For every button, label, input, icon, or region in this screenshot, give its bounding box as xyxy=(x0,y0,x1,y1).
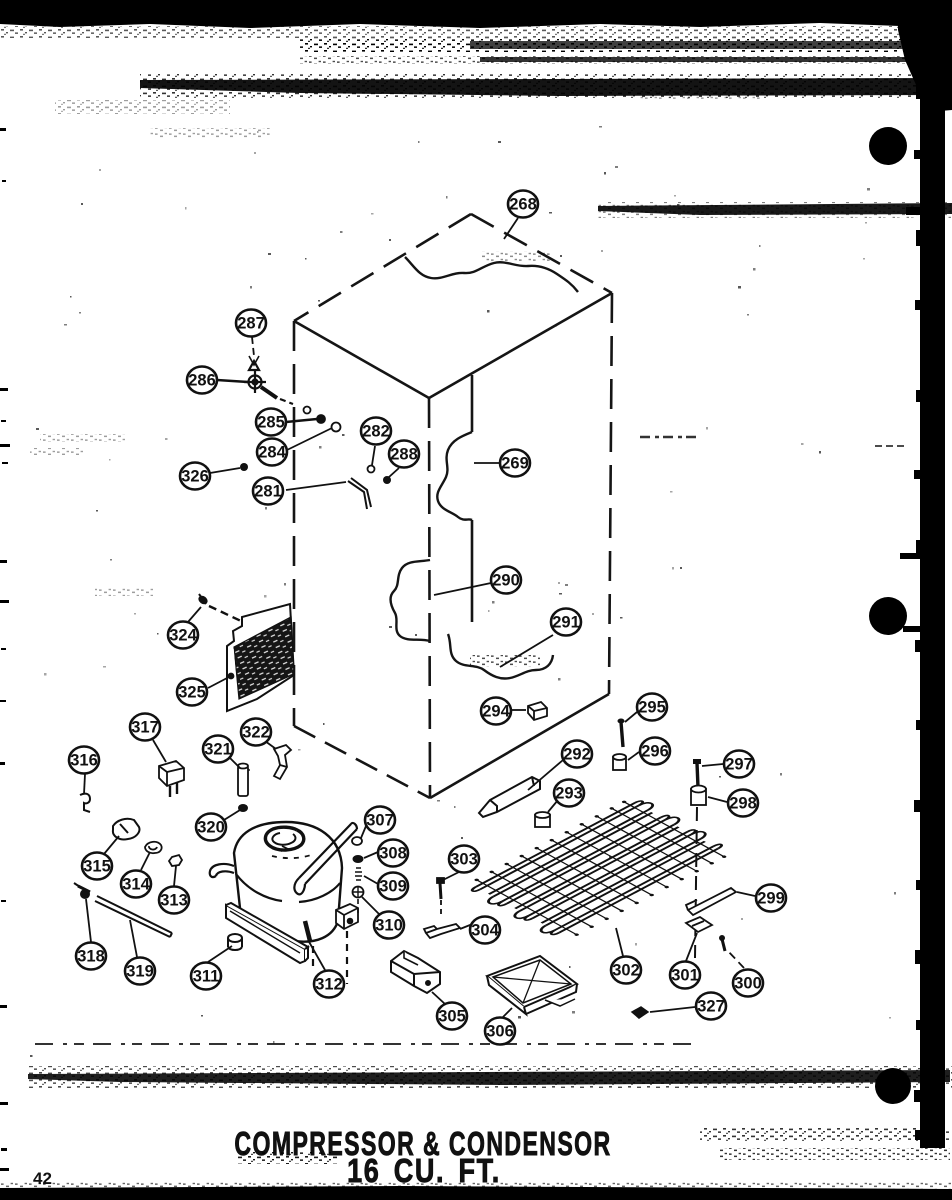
svg-text:324: 324 xyxy=(169,627,197,645)
svg-text:288: 288 xyxy=(390,446,418,464)
svg-text:282: 282 xyxy=(362,423,390,441)
svg-text:302: 302 xyxy=(612,962,640,980)
svg-text:321: 321 xyxy=(204,741,232,759)
svg-text:301: 301 xyxy=(671,967,699,985)
svg-text:327: 327 xyxy=(697,998,725,1016)
svg-text:293: 293 xyxy=(555,785,583,803)
svg-text:295: 295 xyxy=(638,699,666,717)
svg-text:304: 304 xyxy=(471,922,499,940)
svg-text:287: 287 xyxy=(237,315,265,333)
svg-text:284: 284 xyxy=(258,444,286,462)
svg-text:316: 316 xyxy=(70,752,98,770)
svg-text:314: 314 xyxy=(122,876,150,894)
svg-text:303: 303 xyxy=(450,851,478,869)
svg-text:269: 269 xyxy=(501,455,529,473)
svg-text:296: 296 xyxy=(641,743,669,761)
svg-text:268: 268 xyxy=(509,196,537,214)
svg-text:318: 318 xyxy=(77,948,105,966)
svg-text:308: 308 xyxy=(379,845,407,863)
svg-text:298: 298 xyxy=(729,795,757,813)
svg-text:317: 317 xyxy=(131,719,159,737)
svg-text:290: 290 xyxy=(492,572,520,590)
svg-text:292: 292 xyxy=(563,746,591,764)
svg-text:310: 310 xyxy=(375,917,403,935)
svg-text:319: 319 xyxy=(126,963,154,981)
svg-text:16 CU. FT.: 16 CU. FT. xyxy=(347,1154,501,1190)
svg-text:306: 306 xyxy=(486,1023,514,1041)
svg-text:315: 315 xyxy=(83,858,111,876)
svg-text:320: 320 xyxy=(197,819,225,837)
svg-text:285: 285 xyxy=(257,414,285,432)
svg-text:291: 291 xyxy=(552,614,580,632)
svg-text:326: 326 xyxy=(181,468,209,486)
svg-text:305: 305 xyxy=(438,1008,466,1026)
svg-text:313: 313 xyxy=(160,892,188,910)
svg-text:300: 300 xyxy=(734,975,762,993)
svg-text:309: 309 xyxy=(379,878,407,896)
svg-text:299: 299 xyxy=(757,890,785,908)
svg-text:42: 42 xyxy=(33,1169,52,1188)
svg-text:322: 322 xyxy=(242,724,270,742)
svg-text:281: 281 xyxy=(254,483,282,501)
svg-text:294: 294 xyxy=(482,703,510,721)
svg-text:311: 311 xyxy=(193,968,220,986)
svg-text:312: 312 xyxy=(315,976,343,994)
svg-text:297: 297 xyxy=(725,756,753,774)
svg-text:325: 325 xyxy=(178,684,206,702)
svg-text:286: 286 xyxy=(188,372,216,390)
svg-text:307: 307 xyxy=(366,812,394,830)
